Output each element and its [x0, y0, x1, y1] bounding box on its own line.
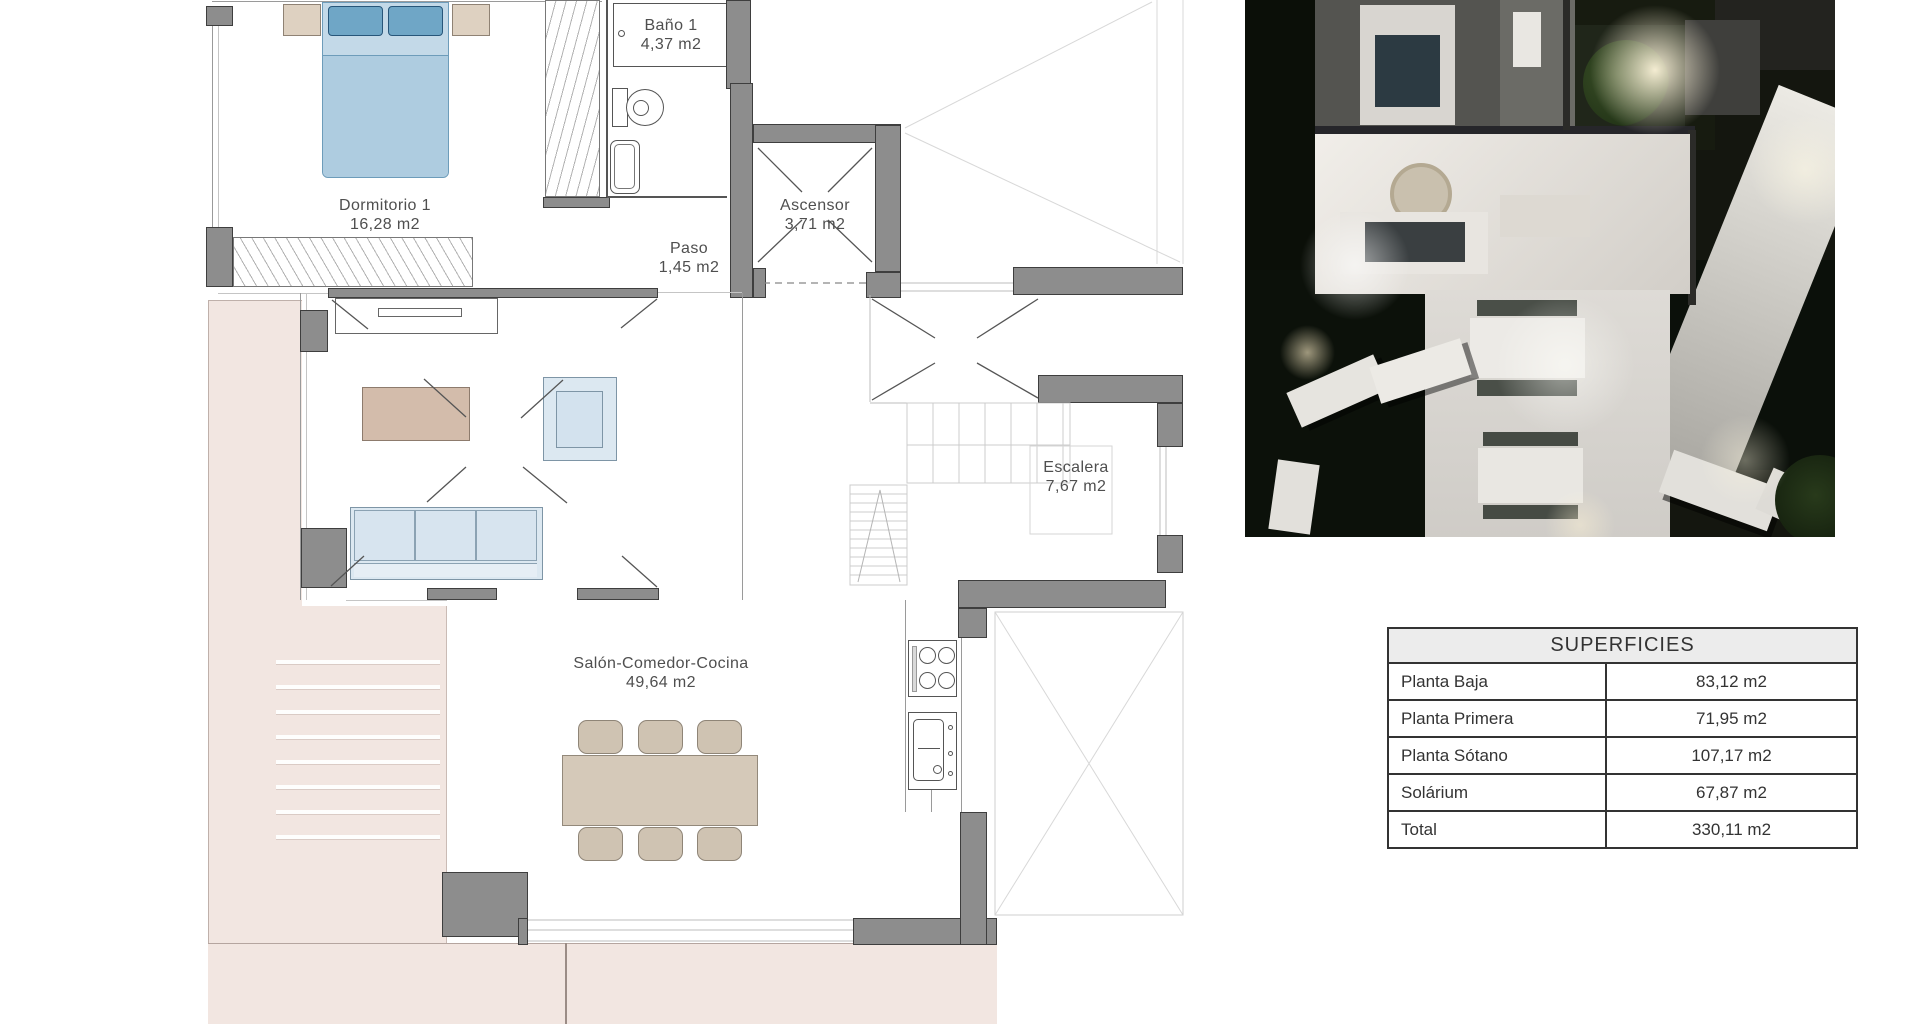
room-area: 1,45 m2 — [659, 258, 720, 277]
room-name: Salón-Comedor-Cocina — [573, 654, 748, 673]
room-name: Escalera — [1043, 458, 1108, 477]
render-chairs — [1477, 300, 1577, 316]
room-area: 3,71 m2 — [780, 215, 850, 234]
render-sofa-cushions — [1365, 222, 1465, 262]
render-stairs — [1685, 20, 1760, 115]
render-tree — [1583, 40, 1669, 126]
room-label-bano-1: Baño 1 4,37 m2 — [641, 16, 702, 54]
room-label-salon-comedor-cocina: Salón-Comedor-Cocina 49,64 m2 — [573, 654, 748, 692]
row-value: 83,12 m2 — [1607, 664, 1856, 699]
room-name: Paso — [659, 239, 720, 258]
table-row: Planta Baja 83,12 m2 — [1389, 664, 1856, 701]
render-chairs — [1477, 380, 1577, 396]
render-bed-cover — [1375, 35, 1440, 107]
row-value: 107,17 m2 — [1607, 738, 1856, 773]
render-chairs — [1483, 505, 1578, 519]
render-chairs — [1483, 432, 1578, 446]
room-area: 49,64 m2 — [573, 673, 748, 692]
room-label-ascensor: Ascensor 3,71 m2 — [780, 196, 850, 234]
room-label-dormitorio-1: Dormitorio 1 16,28 m2 — [339, 196, 431, 234]
table-row: Solárium 67,87 m2 — [1389, 775, 1856, 812]
room-name: Baño 1 — [641, 16, 702, 35]
row-value: 67,87 m2 — [1607, 775, 1856, 810]
row-value: 330,11 m2 — [1607, 812, 1856, 847]
render-wall — [1315, 126, 1695, 134]
plan-lines-layer — [0, 0, 1200, 1024]
row-label: Planta Sótano — [1389, 738, 1607, 773]
table-row: Planta Primera 71,95 m2 — [1389, 701, 1856, 738]
row-label: Planta Baja — [1389, 664, 1607, 699]
room-area: 7,67 m2 — [1043, 477, 1108, 496]
surfaces-table-title: SUPERFICIES — [1389, 629, 1856, 664]
row-label: Total — [1389, 812, 1607, 847]
render-outdoor-table — [1470, 318, 1585, 378]
surfaces-table: SUPERFICIES Planta Baja 83,12 m2 Planta … — [1387, 627, 1858, 849]
render-outdoor-table — [1478, 448, 1583, 503]
aerial-night-render-image — [1245, 0, 1835, 537]
table-row: Total 330,11 m2 — [1389, 812, 1856, 847]
room-name: Ascensor — [780, 196, 850, 215]
page: { "floor_plan": { "rooms": [ {"name": "D… — [0, 0, 1920, 1024]
row-value: 71,95 m2 — [1607, 701, 1856, 736]
table-row: Planta Sótano 107,17 m2 — [1389, 738, 1856, 775]
render-wall — [1563, 0, 1570, 130]
room-label-escalera: Escalera 7,67 m2 — [1043, 458, 1108, 496]
row-label: Solárium — [1389, 775, 1607, 810]
floor-plan: Dormitorio 1 16,28 m2 Baño 1 4,37 m2 Pas… — [0, 0, 1200, 1024]
render-kitchen-island — [1500, 195, 1590, 237]
room-area: 4,37 m2 — [641, 35, 702, 54]
render-bath-fixture — [1513, 12, 1541, 67]
room-name: Dormitorio 1 — [339, 196, 431, 215]
room-label-paso: Paso 1,45 m2 — [659, 239, 720, 277]
room-area: 16,28 m2 — [339, 215, 431, 234]
row-label: Planta Primera — [1389, 701, 1607, 736]
